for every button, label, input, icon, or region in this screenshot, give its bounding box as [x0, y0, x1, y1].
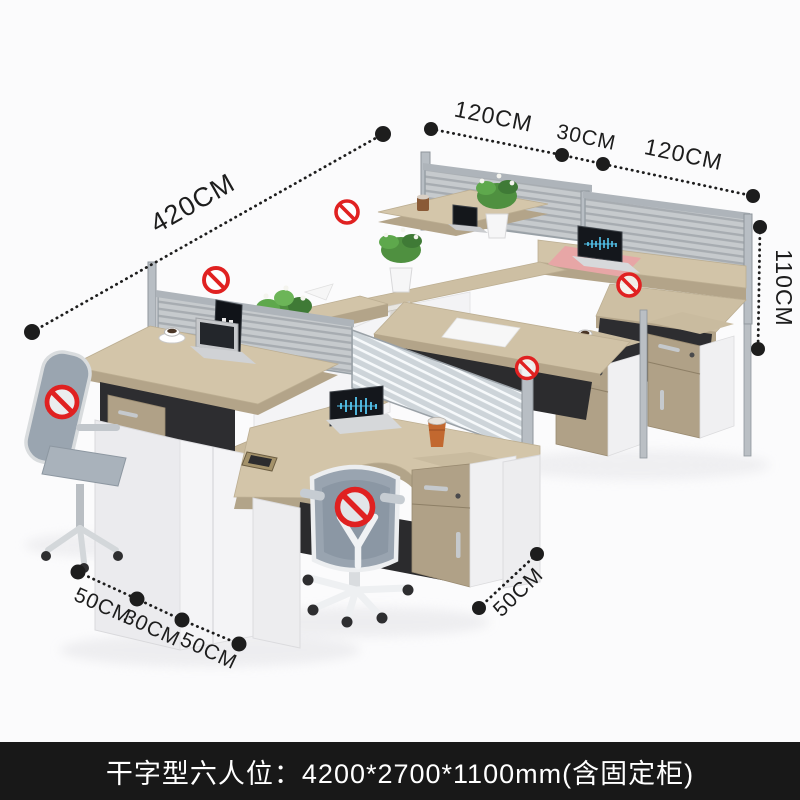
- metal-leg: [640, 310, 647, 458]
- dim-top-seg3-label: 120CM: [642, 133, 725, 175]
- caption-bar: 干字型六人位：4200*2700*1100mm(含固定柜): [0, 742, 800, 800]
- caption-text: 干字型六人位：4200*2700*1100mm(含固定柜): [106, 752, 694, 791]
- prohibition-icon: [47, 387, 77, 417]
- dimension-height-110: 110CM: [751, 220, 797, 356]
- cabinet-panel: [253, 498, 300, 648]
- dim-top-seg1-label: 120CM: [452, 96, 535, 137]
- dim-length-label: 420CM: [145, 167, 240, 238]
- coffee-cup: [417, 195, 429, 211]
- top-center-workstation: [305, 152, 592, 300]
- prohibition-icon: [338, 490, 373, 525]
- prohibition-icon: [618, 274, 640, 296]
- takeaway-cup: [428, 417, 446, 447]
- drawer-pedestal: [412, 452, 516, 587]
- metal-leg: [744, 324, 751, 456]
- prohibition-icon: [336, 201, 358, 223]
- workstation-render: 420CM 120CM 30CM 120CM 110CM 50CM 30CM 5…: [0, 0, 800, 800]
- product-image: 420CM 120CM 30CM 120CM 110CM 50CM 30CM 5…: [0, 0, 800, 800]
- prohibition-icon: [517, 358, 538, 379]
- paper-sheet: [305, 284, 333, 300]
- prohibition-icon: [204, 268, 228, 292]
- partition-post: [148, 262, 156, 336]
- potted-plant: [379, 228, 422, 292]
- dim-height-label: 110CM: [771, 249, 797, 326]
